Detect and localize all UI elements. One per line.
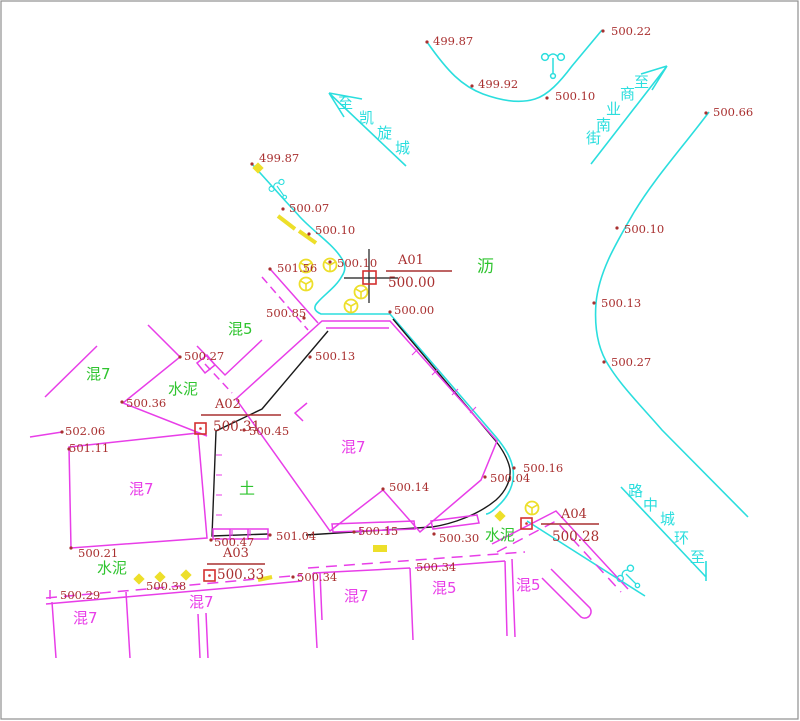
spot-elevation-dot [250,162,253,165]
surface-label: 混7 [189,593,214,611]
spot-elevation-dot [388,310,391,313]
control-square-dot [525,522,528,525]
surface-label: 混7 [129,480,154,498]
streetlight-icon [542,54,565,79]
streetlight-lamp-right [558,54,565,61]
streetlight-icon [268,178,293,203]
surface-label: 水泥 [168,380,198,398]
spot-elevation-dot [69,546,72,549]
spot-elevation-dot [545,96,548,99]
road-name-char: 路 [628,482,643,500]
spot-elevation-dot [268,533,271,536]
spot-elevation-label: 501.56 [277,261,317,275]
spot-elevation-dot [483,475,486,478]
spot-elevation-label: 500.66 [713,105,753,119]
control-id-label: A01 [397,253,424,268]
spot-elevation-label: 500.00 [394,303,434,317]
survey-map-canvas[interactable]: 499.87500.22499.92500.10500.66500.10500.… [0,0,800,721]
spot-elevation-label: 500.13 [315,349,355,363]
surface-label: 混5 [432,579,457,597]
yellow-dash-mark [299,231,316,243]
surface-label: 混7 [73,609,98,627]
road-name-char: 街 [586,129,601,147]
spot-elevation-label: 500.27 [184,349,224,363]
spot-elevation-dot [602,360,605,363]
spot-elevation-dot [425,40,428,43]
survey-map-svg: 499.87500.22499.92500.10500.66500.10500.… [0,0,800,721]
spot-elevation-label: 500.10 [315,223,355,237]
spot-elevation-dot [268,267,271,270]
spot-elevation-label: 500.10 [624,222,664,236]
spot-elevation-label: 500.10 [337,256,377,270]
road-name-char: 旋 [377,124,392,142]
surface-label: 混7 [341,438,366,456]
yellow-dash-mark [278,216,295,229]
spot-elevation-label: 502.06 [65,424,105,438]
surface-label: 土 [239,479,255,498]
spot-elevation-label: 500.22 [611,24,651,38]
road-name-char: 至 [634,73,649,91]
control-square-dot [208,574,211,577]
hairpin-bottom-right [542,569,591,618]
surface-label: 混5 [228,320,253,338]
spot-elevation-label: 500.30 [439,531,479,545]
control-square-dot [199,427,202,430]
spot-elevation-label: 501.04 [276,529,316,543]
spot-elevation-label: 499.87 [259,151,299,165]
building-center-step [295,403,307,421]
surface-label: 水泥 [97,559,127,577]
spot-elevations: 499.87500.22499.92500.10500.66500.10500.… [60,24,753,602]
spot-elevation-label: 500.29 [60,588,100,602]
spot-elevation-dot [308,355,311,358]
control-elevation-value: 500.28 [552,529,599,545]
spot-elevation-dot [178,355,181,358]
spot-elevation-dot [615,226,618,229]
spot-elevation-dot [381,487,384,490]
well-icon [526,502,539,515]
spot-elevation-label: 500.16 [523,461,563,475]
spot-elevation-label: 500.07 [289,201,329,215]
control-elevation-value: 500.00 [388,275,435,291]
spot-elevation-dot [120,400,123,403]
surface-label: 水泥 [485,526,515,544]
road-name-char: 环 [674,529,689,547]
spot-elevation-dot [432,532,435,535]
road-name-char: 商 [620,85,635,103]
surface-label: 混5 [516,576,541,594]
streetlight-icon [616,564,646,594]
road-edge-west [252,164,513,514]
spot-elevation-label: 500.21 [78,546,118,560]
leader-502 [30,432,62,437]
surface-label: 混7 [344,587,369,605]
spot-elevation-dot [328,260,331,263]
road-name-char: 至 [690,548,705,566]
spot-elevation-label: 500.85 [266,306,306,320]
spot-elevation-label: 500.13 [601,296,641,310]
road-name-char: 中 [643,496,658,514]
spot-elevation-dot [512,466,515,469]
spot-elevation-dot [307,232,310,235]
spot-elevation-label: 499.87 [433,34,473,48]
control-elevation-value: 500.31 [213,419,260,435]
road-name-char: 凯 [359,109,374,127]
well-icon [355,286,368,299]
road-arrow-business-street [591,66,667,164]
spot-elevation-label: 500.14 [389,480,429,494]
road-name-char: 至 [338,94,353,112]
spot-elevation-label: 500.27 [611,355,651,369]
control-id-label: A04 [560,507,587,522]
spot-elevation-label: 500.34 [297,570,337,584]
road-curve-right [596,112,748,517]
spot-elevation-dot [291,575,294,578]
spot-elevation-label: 501.11 [69,441,109,455]
streetlight-lamp-right [278,178,285,185]
spot-elevation-dot [281,207,284,210]
spot-elevation-dot [352,530,355,533]
yellow-rect-mark [373,545,387,552]
spot-elevation-label: 500.15 [358,524,398,538]
yellow-diamond-mark [494,510,505,521]
map-border [1,1,798,719]
surface-label: 沥 [477,257,494,277]
streetlight-base [551,74,556,79]
spot-elevation-dot [704,111,707,114]
spot-elevation-dot [592,301,595,304]
spot-elevation-label: 500.10 [555,89,595,103]
streetlight-lamp-right [626,564,635,573]
well-icon [345,300,358,313]
spot-elevation-dot [601,29,604,32]
streetlight-pole [548,54,558,74]
spot-elevation-label: 500.36 [126,396,166,410]
spot-elevation-dot [302,316,305,319]
spot-elevation-dot [67,447,70,450]
yellow-diamond-mark [133,573,144,584]
streetlight-lamp-left [542,54,549,61]
surface-label: 混7 [86,365,111,383]
control-id-label: A02 [214,397,241,412]
road-name-char: 城 [395,139,410,157]
control-point-a03: A03500.33 [204,546,265,583]
spot-elevation-label: 500.38 [146,579,186,593]
spot-elevation-dot [60,430,63,433]
spot-elevation-label: 500.34 [416,560,456,574]
spot-elevation-dot [470,84,473,87]
well-icon [300,278,313,291]
spot-elevation-label: 499.92 [478,77,518,91]
control-id-label: A03 [222,546,249,561]
road-name-char: 城 [660,510,675,528]
spot-elevation-dot [209,538,212,541]
control-elevation-value: 500.33 [217,567,264,583]
